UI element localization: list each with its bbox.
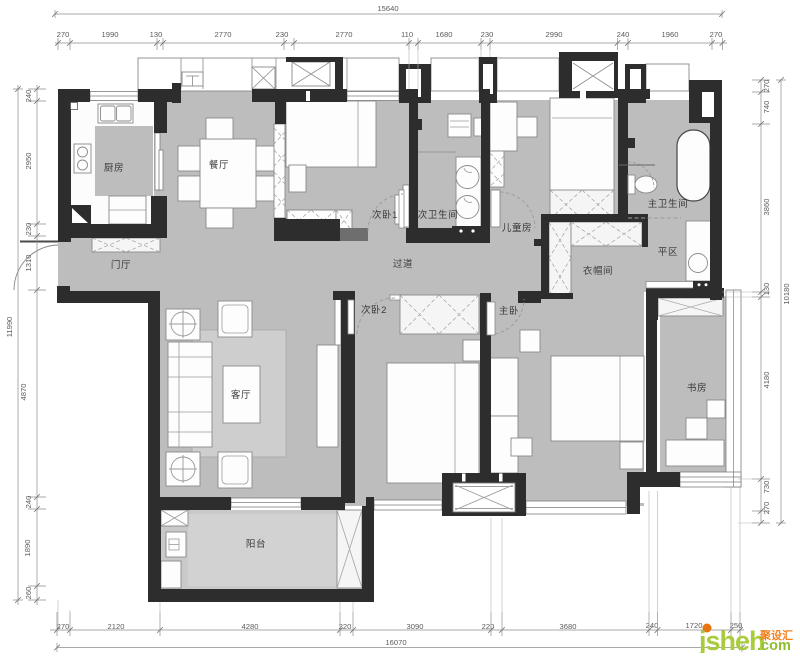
svg-text:1960: 1960	[662, 30, 679, 39]
svg-text:1890: 1890	[23, 540, 32, 557]
svg-text:270: 270	[57, 622, 70, 631]
svg-text:厨房: 厨房	[104, 162, 124, 174]
svg-text:240: 240	[646, 621, 659, 630]
svg-text:740: 740	[762, 101, 771, 114]
svg-text:270: 270	[710, 30, 723, 39]
svg-text:16070: 16070	[385, 638, 406, 647]
svg-text:儿童房: 儿童房	[502, 222, 532, 234]
svg-text:240: 240	[617, 30, 630, 39]
svg-text:10180: 10180	[782, 283, 791, 304]
svg-text:270: 270	[762, 502, 771, 515]
svg-text:3680: 3680	[560, 622, 577, 631]
svg-text:130: 130	[150, 30, 163, 39]
svg-text:阳台: 阳台	[246, 538, 266, 550]
svg-text:1990: 1990	[102, 30, 119, 39]
svg-text:730: 730	[762, 481, 771, 494]
svg-text:240: 240	[24, 90, 33, 103]
svg-text:主卧: 主卧	[499, 305, 519, 317]
svg-text:110: 110	[401, 30, 413, 39]
svg-text:4870: 4870	[19, 384, 28, 401]
svg-text:次卧2: 次卧2	[361, 304, 387, 316]
svg-text:1680: 1680	[436, 30, 453, 39]
svg-text:次卧1: 次卧1	[372, 209, 398, 221]
svg-text:220: 220	[482, 622, 495, 631]
svg-text:130: 130	[762, 283, 771, 296]
svg-text:客厅: 客厅	[231, 389, 251, 401]
svg-text:2770: 2770	[215, 30, 232, 39]
svg-text:1310: 1310	[24, 255, 33, 272]
svg-text:3090: 3090	[407, 622, 424, 631]
svg-text:230: 230	[276, 30, 289, 39]
svg-text:260: 260	[24, 587, 33, 600]
svg-text:270: 270	[57, 30, 70, 39]
svg-text:餐厅: 餐厅	[209, 159, 229, 171]
svg-text:4180: 4180	[762, 372, 771, 389]
svg-text:270: 270	[762, 80, 771, 93]
svg-text:2950: 2950	[24, 153, 33, 170]
svg-text:2120: 2120	[108, 622, 125, 631]
svg-text:11990: 11990	[5, 317, 14, 338]
svg-text:书房: 书房	[687, 382, 707, 394]
svg-text:2770: 2770	[336, 30, 353, 39]
svg-text:230: 230	[24, 223, 33, 236]
svg-text:平区: 平区	[658, 247, 678, 258]
svg-text:3860: 3860	[762, 199, 771, 216]
svg-text:衣帽间: 衣帽间	[583, 265, 613, 277]
svg-text:4280: 4280	[242, 622, 259, 631]
svg-text:门厅: 门厅	[111, 259, 131, 271]
svg-text:jsheh: jsheh	[698, 626, 765, 653]
svg-text:过道: 过道	[393, 258, 413, 270]
svg-text:230: 230	[481, 30, 494, 39]
svg-text:240: 240	[24, 496, 33, 509]
svg-text:次卫生间: 次卫生间	[418, 209, 458, 221]
svg-text:聚设汇: 聚设汇	[759, 628, 793, 642]
svg-text:主卫生间: 主卫生间	[648, 198, 688, 210]
svg-text:2990: 2990	[546, 30, 563, 39]
svg-text:15640: 15640	[377, 4, 398, 13]
